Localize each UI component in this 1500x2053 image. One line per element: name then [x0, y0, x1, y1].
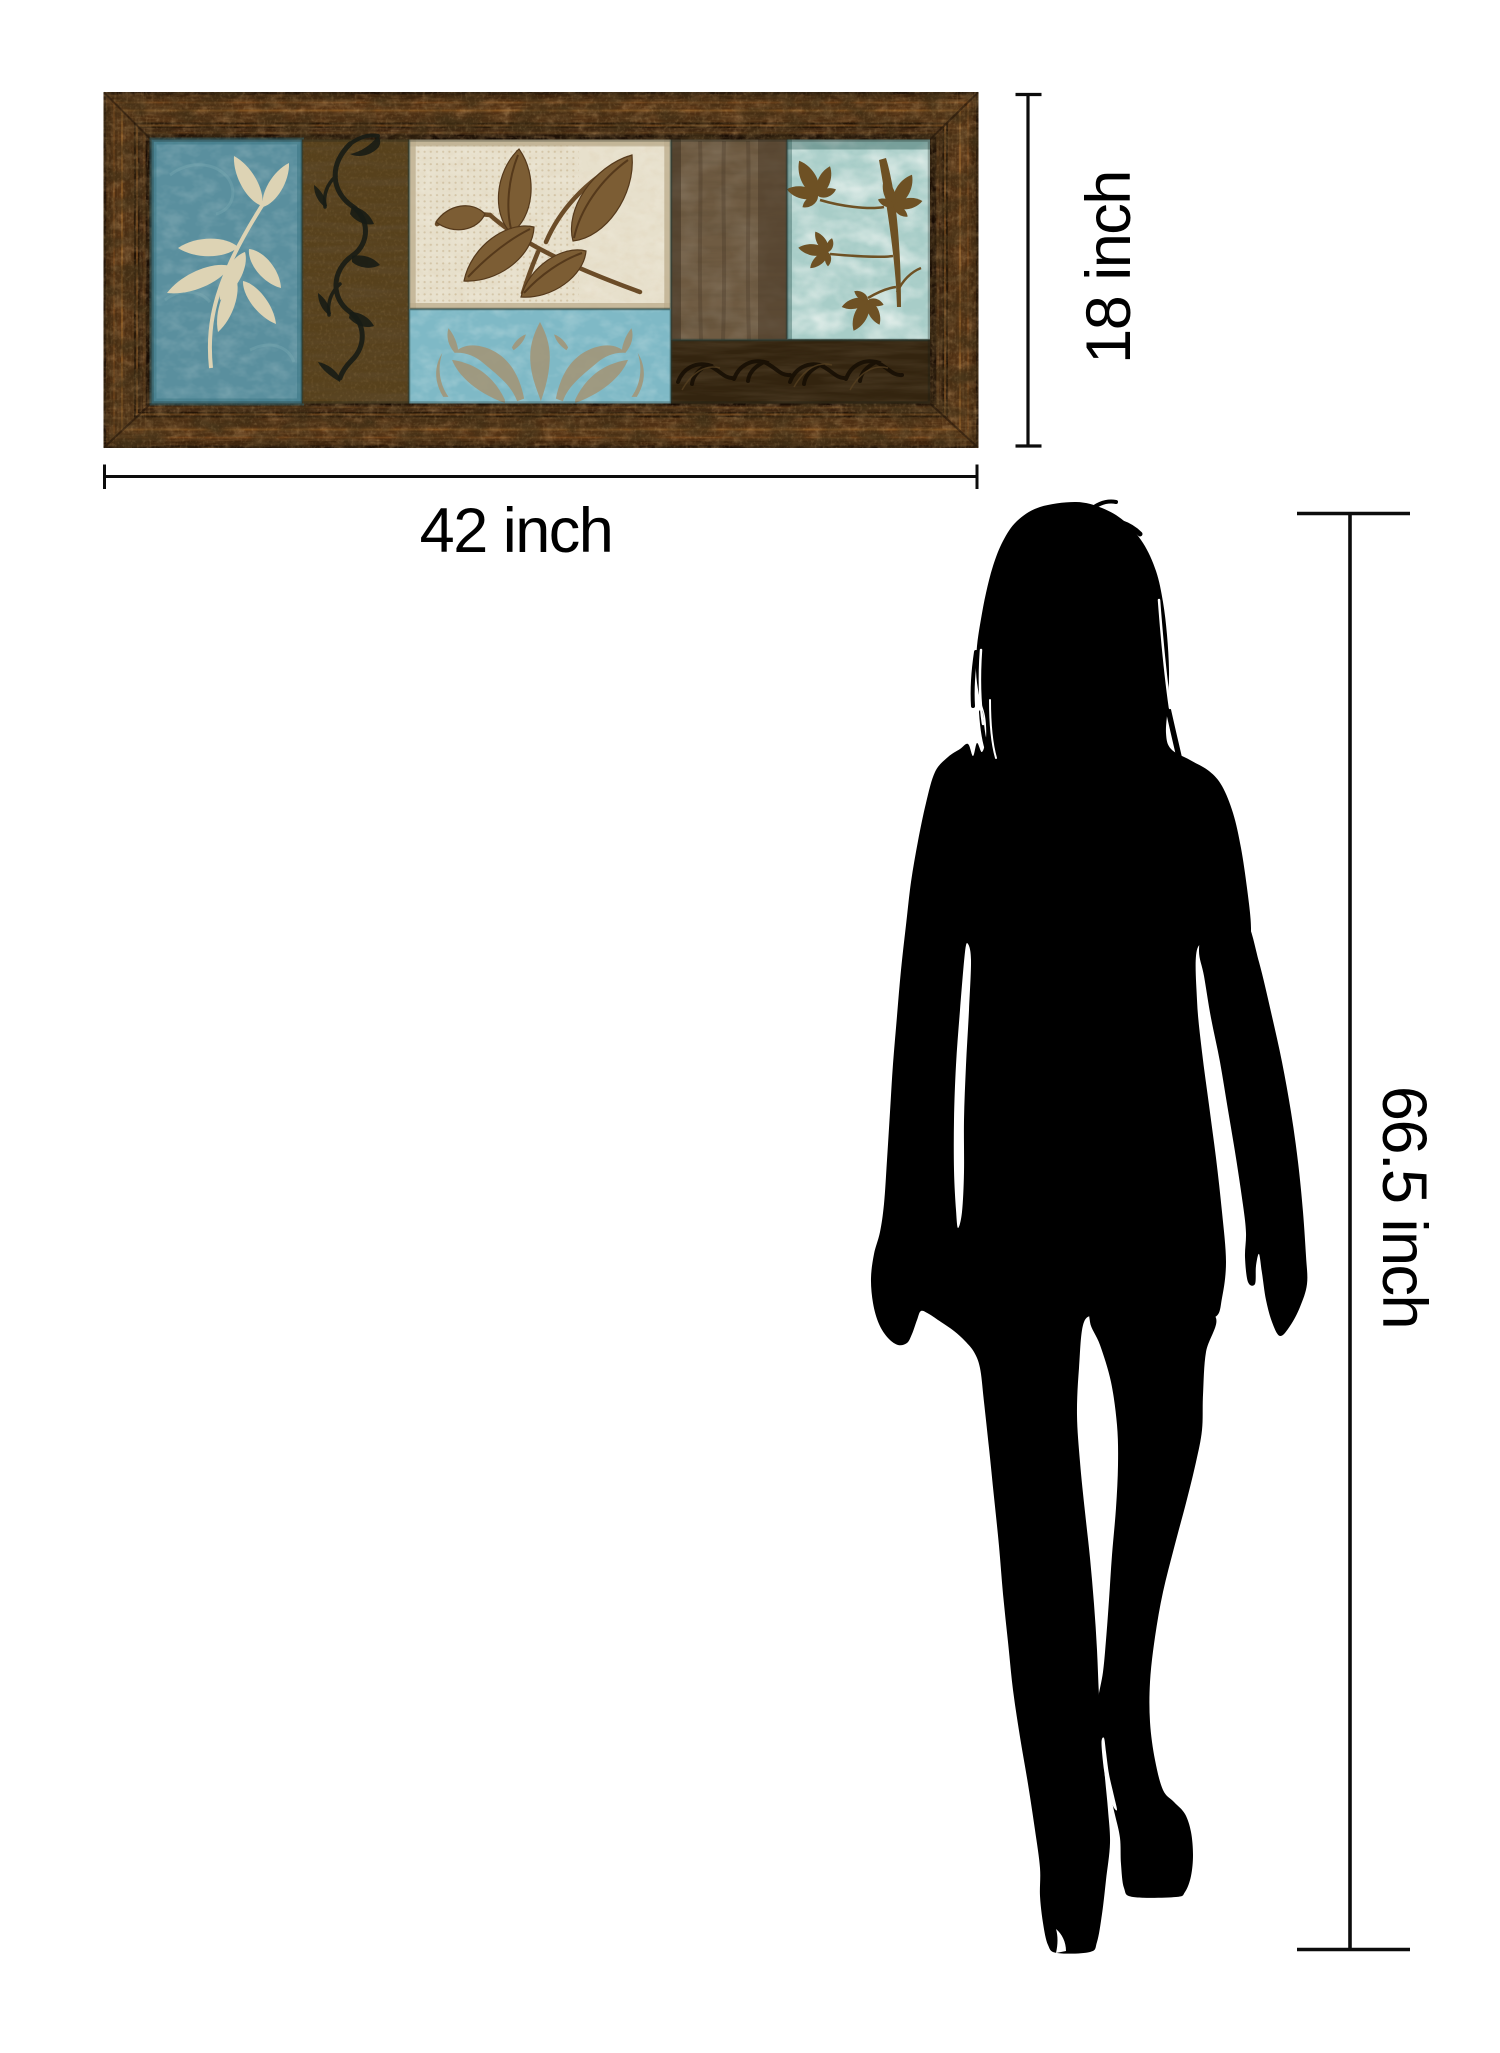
- svg-text:66.5 inch: 66.5 inch: [1369, 1086, 1439, 1328]
- svg-text:42 inch: 42 inch: [420, 496, 613, 566]
- svg-text:18 inch: 18 inch: [1074, 171, 1144, 364]
